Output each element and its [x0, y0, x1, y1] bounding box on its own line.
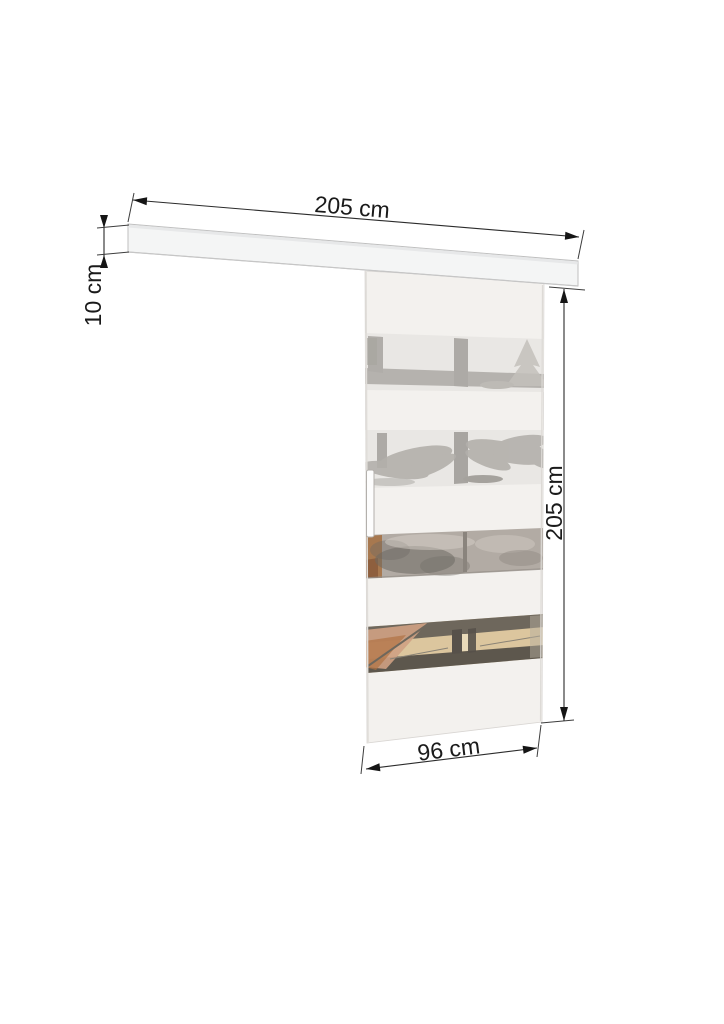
arrow-left-icon: [133, 197, 147, 205]
dim-rail-height: 10 cm: [80, 215, 129, 326]
arrow-left-icon: [366, 763, 380, 771]
arrow-right-icon: [565, 232, 579, 240]
dark-leaf-reflection: [499, 550, 543, 566]
sliding-door-dimension-diagram: 205 cm 10 cm 205 cm 96 cm: [0, 0, 724, 1024]
glass-stripe-railing: [365, 333, 548, 392]
arrow-right-icon: [523, 746, 537, 754]
top-rail: [128, 224, 578, 286]
door-panel: [360, 271, 557, 743]
shrub-reflection: [480, 381, 514, 389]
glass-divider: [463, 532, 467, 572]
extension-line: [578, 230, 584, 259]
extension-line: [128, 193, 134, 222]
wood-highlight: [462, 634, 468, 651]
diagram-canvas: 205 cm 10 cm 205 cm 96 cm: [0, 0, 724, 1024]
railing-post-reflection: [454, 338, 468, 387]
bench-leg-reflection: [468, 628, 476, 653]
door-handle: [367, 470, 375, 537]
arrow-down-icon: [560, 707, 568, 721]
arrow-down-icon: [100, 215, 108, 228]
door-height-label: 205 cm: [541, 465, 567, 540]
extension-line: [361, 746, 364, 774]
glass-stripe-plants: [360, 430, 557, 488]
extension-line: [537, 725, 541, 757]
post-reflection: [454, 432, 468, 484]
extension-tick: [541, 720, 574, 723]
sky-highlight-reflection: [385, 534, 475, 550]
rail-height-label: 10 cm: [80, 264, 106, 327]
extension-tick: [97, 252, 129, 255]
extension-tick: [97, 225, 129, 228]
rail-body: [128, 224, 578, 286]
foliage-reflection: [366, 338, 377, 365]
door-width-label: 96 cm: [416, 732, 481, 765]
ground-shadow-reflection: [463, 475, 503, 483]
extension-tick: [549, 287, 585, 290]
glass-edge-highlight: [530, 615, 544, 658]
dim-door-height: 205 cm: [541, 287, 585, 723]
glass-stripe-tinted: [365, 528, 544, 578]
bench-leg-reflection: [452, 629, 462, 654]
arrow-up-icon: [560, 289, 568, 303]
rail-width-label: 205 cm: [314, 191, 391, 223]
